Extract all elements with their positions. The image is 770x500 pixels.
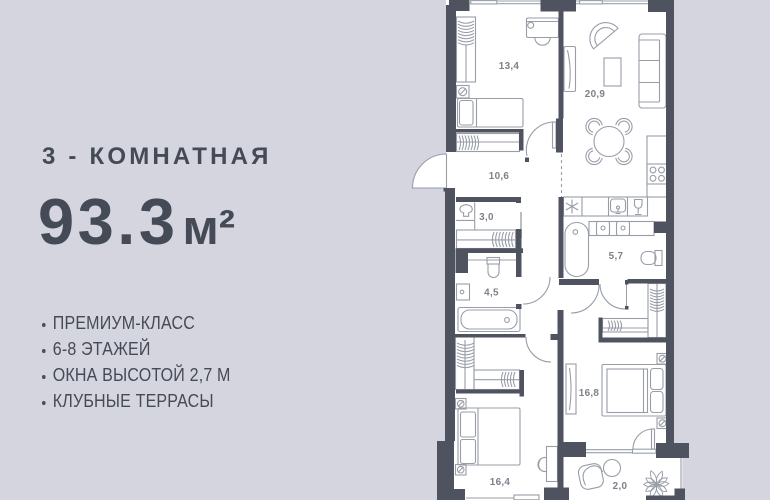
svg-text:16,4: 16,4 <box>490 477 511 488</box>
svg-text:5,7: 5,7 <box>609 251 624 262</box>
svg-text:13,4: 13,4 <box>499 61 520 72</box>
svg-text:10,6: 10,6 <box>489 171 510 182</box>
svg-text:4,5: 4,5 <box>484 288 499 299</box>
svg-text:2,0: 2,0 <box>613 481 628 492</box>
svg-text:20,9: 20,9 <box>585 89 606 100</box>
svg-text:16,8: 16,8 <box>579 388 600 399</box>
svg-text:3,0: 3,0 <box>479 212 494 223</box>
